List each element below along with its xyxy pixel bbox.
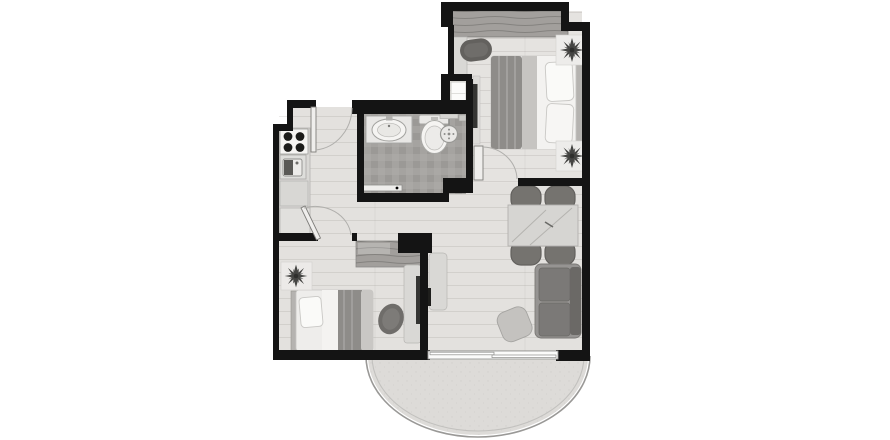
wall-bathroom-west — [357, 103, 364, 202]
toilet-button — [431, 117, 438, 120]
wall-left — [273, 124, 279, 360]
sofa-cushion — [539, 268, 570, 301]
wall-top-bathroom — [352, 100, 472, 114]
burner — [284, 143, 293, 152]
sofa-backrest — [570, 267, 581, 335]
wall-bathroom-east — [466, 79, 473, 185]
double-bed — [491, 55, 583, 150]
pillow — [545, 61, 574, 101]
sofa — [535, 264, 581, 338]
bathroom-door-handle — [396, 187, 399, 190]
pillow — [299, 296, 324, 328]
wall-bedroom2-east — [420, 233, 428, 355]
entry-door-leaf — [311, 107, 316, 152]
bed-sheet-fold — [522, 56, 537, 149]
bedroom-main-door-leaf — [474, 146, 483, 180]
wall-corner-hall — [443, 178, 473, 193]
balcony-door-panel — [492, 355, 556, 358]
floor-plan — [0, 0, 890, 440]
kitchen — [279, 128, 310, 234]
wall-bedroom2-jamb — [352, 233, 357, 241]
kitchen-faucet — [296, 162, 299, 165]
kitchen-sink-drainer — [284, 160, 293, 175]
tv2-icon — [416, 276, 420, 324]
wall-bedroom2-north — [273, 233, 318, 241]
wall-bottom-left — [273, 350, 430, 360]
burner — [296, 132, 305, 141]
sofa-cushion — [539, 303, 570, 336]
wall-bottom-right — [556, 350, 590, 361]
wall-top-bedroom — [443, 2, 569, 11]
pillow — [545, 103, 574, 143]
balcony-floor-texture — [368, 356, 588, 435]
wardrobe-main-grain — [450, 11, 568, 37]
wall-right — [582, 22, 590, 361]
tv-icon — [473, 84, 478, 128]
balcony — [366, 356, 590, 437]
dining-table — [508, 205, 578, 246]
plant-icon — [560, 144, 584, 168]
wall-dining — [518, 178, 590, 186]
balcony-sliding-door — [428, 351, 558, 359]
kitchen-cabinet-1 — [280, 181, 308, 206]
bed2-sheet — [322, 290, 339, 351]
stove — [280, 129, 308, 154]
vanity-faucet — [386, 116, 393, 121]
bed2-blanket — [338, 290, 362, 351]
shower-niche — [459, 115, 466, 121]
plant-icon — [285, 265, 308, 288]
plant-icon — [560, 38, 584, 62]
vanity-drain — [388, 125, 390, 127]
wall-bedroom-west-upper — [441, 2, 453, 27]
burner — [296, 143, 305, 152]
tv-console — [429, 253, 447, 310]
bed2-foot-throw — [361, 290, 373, 351]
wall-bathroom-south — [357, 193, 449, 202]
wall-bedroom-west-thin — [448, 25, 454, 77]
floor-plan-page — [0, 0, 890, 440]
balcony-door-panel — [430, 352, 494, 355]
shower-valve-bar — [440, 114, 458, 119]
burner — [284, 132, 293, 141]
single-bed — [291, 290, 373, 351]
wardrobe-second-step — [358, 243, 390, 254]
